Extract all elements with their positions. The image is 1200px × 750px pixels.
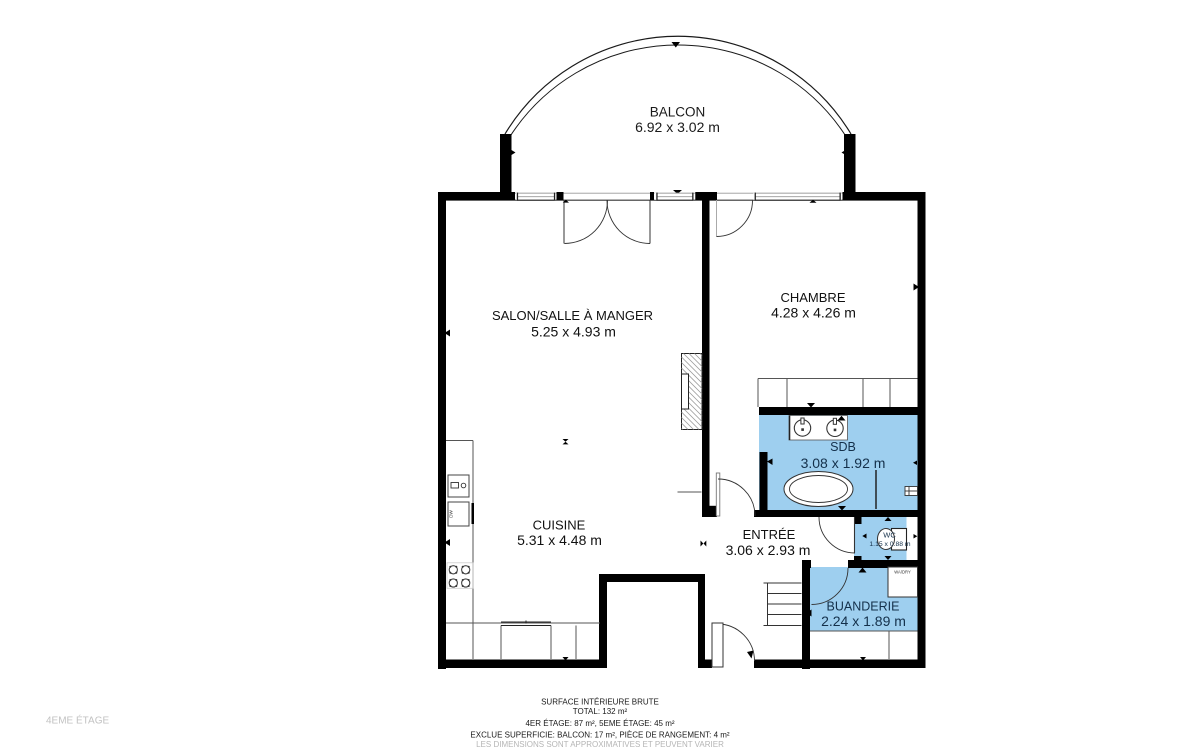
svg-text:CHAMBRE: CHAMBRE [780,290,845,305]
svg-text:SURFACE INTÉRIEURE BRUTE: SURFACE INTÉRIEURE BRUTE [541,698,659,707]
svg-text:3.08 x 1.92 m: 3.08 x 1.92 m [801,455,886,471]
svg-text:4.28 x 4.26 m: 4.28 x 4.26 m [771,305,856,321]
svg-text:CUISINE: CUISINE [533,518,586,533]
svg-text:6.92 x 3.02 m: 6.92 x 3.02 m [635,119,720,135]
svg-text:3.06 x 2.93 m: 3.06 x 2.93 m [726,542,811,558]
svg-text:4EME ÉTAGE: 4EME ÉTAGE [46,714,109,727]
svg-text:WA/DRY: WA/DRY [894,570,911,575]
svg-text:1.15 x 0.88 m: 1.15 x 0.88 m [869,541,911,548]
svg-text:WC: WC [883,531,896,540]
svg-text:5.25 x 4.93 m: 5.25 x 4.93 m [531,324,616,340]
svg-text:ENTRÉE: ENTRÉE [743,527,796,542]
svg-text:SDB: SDB [830,440,856,454]
svg-text:LES DIMENSIONS SONT APPROXIMAT: LES DIMENSIONS SONT APPROXIMATIVES ET PE… [476,740,724,749]
svg-text:5.31 x 4.48 m: 5.31 x 4.48 m [517,532,602,548]
svg-text:BUANDERIE: BUANDERIE [827,600,900,614]
svg-text:2.24 x 1.89 m: 2.24 x 1.89 m [821,613,906,629]
svg-text:DW: DW [449,510,454,518]
svg-text:TOTAL: 132 m²: TOTAL: 132 m² [573,707,628,716]
svg-text:BALCON: BALCON [650,105,706,120]
svg-text:EXCLUE SUPERFICIE: BALCON: 17: EXCLUE SUPERFICIE: BALCON: 17 m², PIÈCE … [470,731,730,740]
svg-text:4ER ÉTAGE: 87 m², 5EME ÉTAGE:: 4ER ÉTAGE: 87 m², 5EME ÉTAGE: 45 m² [525,719,674,728]
svg-text:SALON/SALLE À MANGER: SALON/SALLE À MANGER [492,308,653,323]
